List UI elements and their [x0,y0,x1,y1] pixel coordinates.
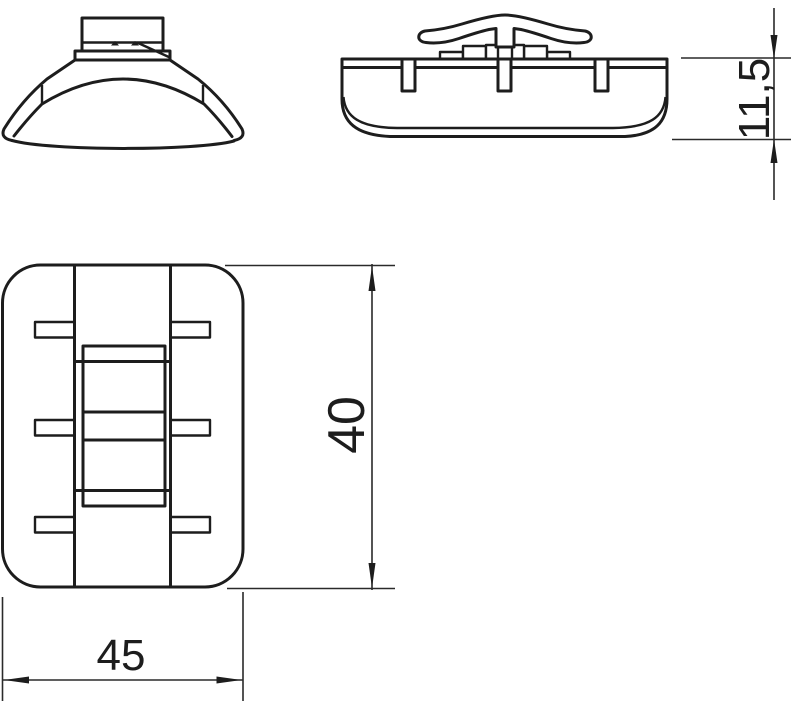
saddle-bottom-arc [12,141,234,149]
dimension-height: 11,5 [672,8,791,200]
side-tab-right-bottom [171,517,211,533]
clip-step-inner-right [524,46,547,59]
rib-tab-left [402,59,415,91]
center-ladder-outline [83,346,165,506]
dimension-label-height: 11,5 [730,58,779,140]
side-view [342,15,667,137]
saddle-top-arc [14,79,232,137]
side-tab-left-top [35,322,75,338]
front-view [3,18,243,148]
dimension-arrow-down [369,563,376,588]
dimension-arrow-up [771,139,778,163]
side-tab-left-middle [35,420,75,436]
saddle-outer-edge-left [3,60,75,141]
dimension-label-width: 45 [97,631,146,680]
side-tab-left-bottom [35,517,75,533]
flange [75,51,170,60]
plan-outline [3,265,244,587]
rib-tab-center [498,59,511,91]
body-inner-wall-line [344,97,666,128]
technical-drawing-canvas: 11,5 40 [0,0,794,702]
mounting-block [82,18,163,51]
dimension-arrow-right [217,677,242,684]
saddle-outer-edge-right [170,60,243,141]
plan-view [3,265,244,587]
dimension-length: 40 [225,264,395,590]
dimension-arrow-left [4,677,29,684]
side-tab-right-middle [171,420,211,436]
spring-clip [419,15,592,47]
dimension-label-length: 40 [318,396,376,454]
clip-step-inner-left [463,46,486,59]
rib-tab-right [595,59,608,91]
dimension-width: 45 [3,592,244,701]
dimension-arrow-down [771,35,778,59]
side-tab-right-top [171,322,211,338]
drawing-svg: 11,5 40 [0,0,794,702]
dimension-arrow-up [369,266,376,291]
